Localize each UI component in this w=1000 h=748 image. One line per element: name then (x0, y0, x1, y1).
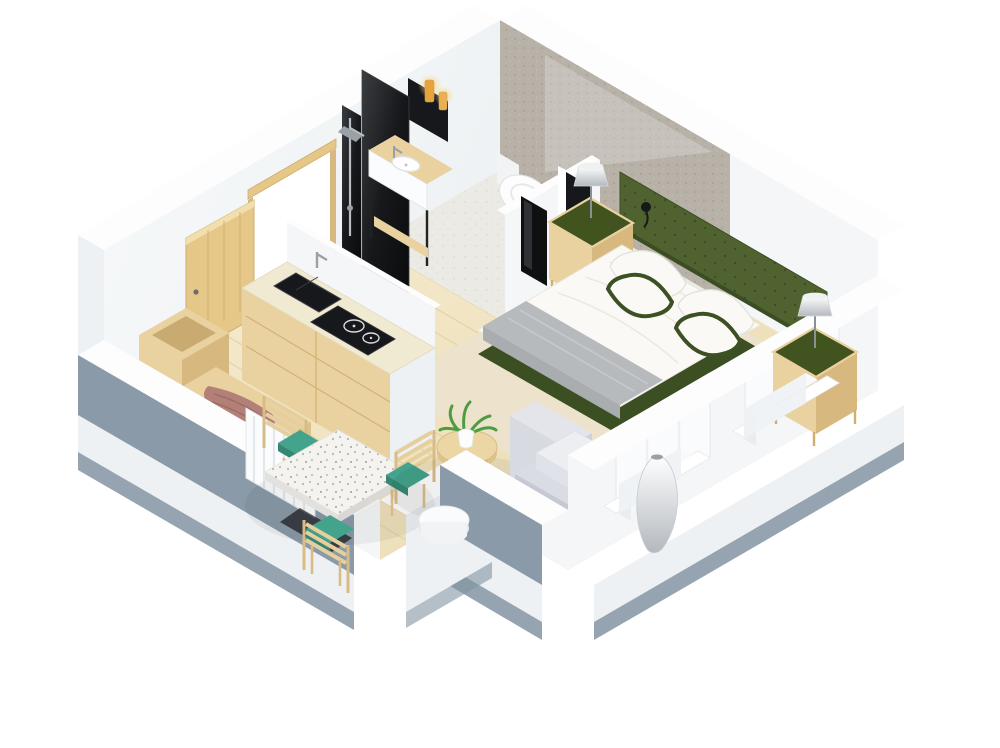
tv-panel: Wall-mounted TV (521, 196, 547, 286)
door-handle (193, 289, 198, 294)
white-stool: White side stool (419, 506, 469, 545)
floorplan-render: Studio apartment 3D floor plan (0, 0, 1000, 748)
floorplan-stage: Studio apartment 3D floor plan (0, 0, 1000, 748)
